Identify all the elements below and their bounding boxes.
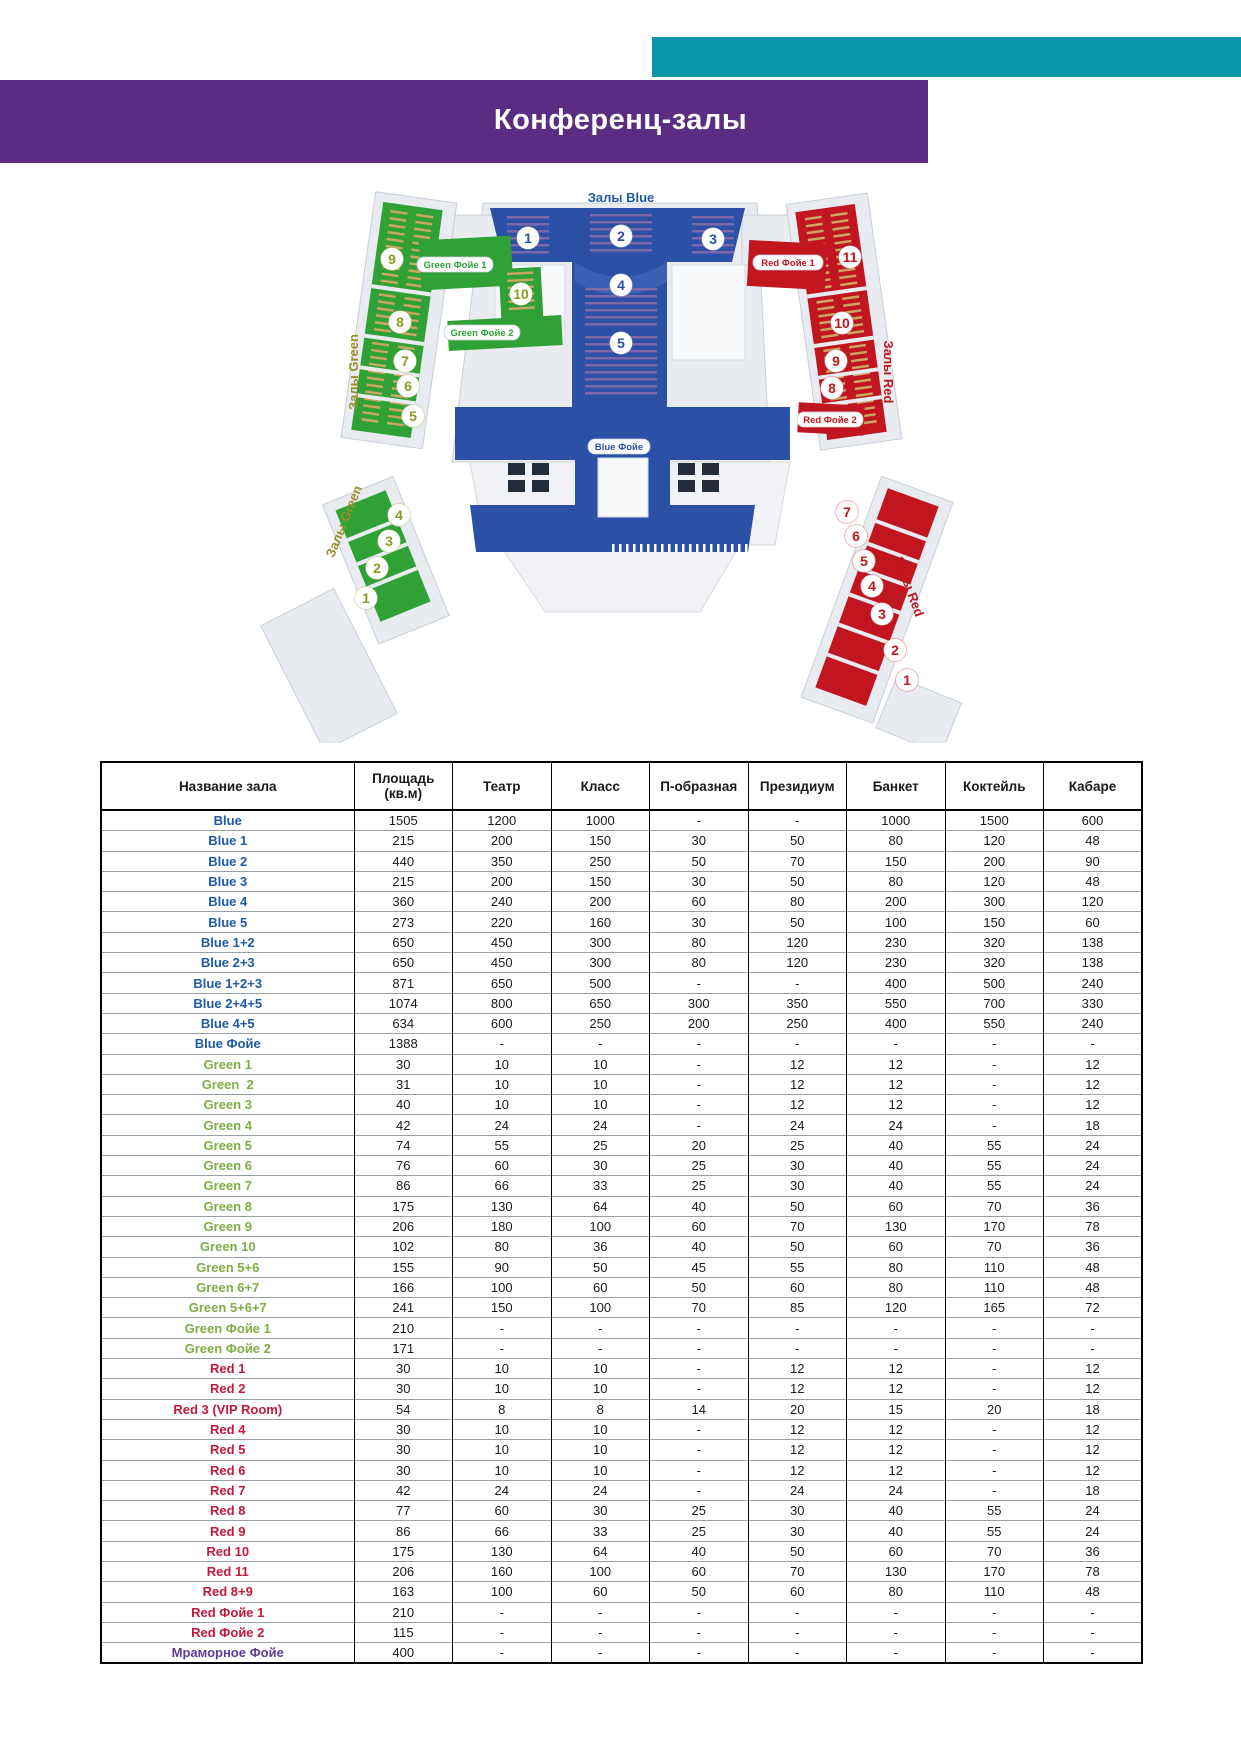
capacity-cell: 100 [453,1582,552,1602]
capacity-cell: - [945,1622,1044,1642]
capacity-cell: 80 [847,871,946,891]
capacity-cell: 12 [847,1074,946,1094]
capacity-cell: 120 [748,932,847,952]
hall-name: Red 6 [101,1460,354,1480]
capacity-cell: 30 [354,1440,453,1460]
capacity-cell: - [945,1379,1044,1399]
capacity-cell: - [1044,1034,1143,1054]
capacity-cell: - [453,1643,552,1664]
capacity-cell: 12 [748,1440,847,1460]
capacity-cell: 200 [945,851,1044,871]
capacity-cell: 1200 [453,810,552,831]
hall-marker-blue-1: 1 [517,227,540,250]
capacity-cell: 90 [453,1257,552,1277]
capacity-cell: 12 [1044,1074,1143,1094]
capacity-cell: 100 [847,912,946,932]
capacity-cell: 60 [847,1196,946,1216]
capacity-cell: - [945,1034,1044,1054]
hall-name: Green 10 [101,1237,354,1257]
capacity-cell: 215 [354,831,453,851]
capacity-cell: 440 [354,851,453,871]
capacity-cell: 78 [1044,1561,1143,1581]
capacity-cell: 24 [453,1480,552,1500]
column-header-banquet: Банкет [847,762,946,810]
table-row: Red 6301010-1212-12 [101,1460,1142,1480]
capacity-cell: 500 [945,973,1044,993]
capacity-cell: 86 [354,1176,453,1196]
capacity-cell: 55 [945,1176,1044,1196]
capacity-cell: 70 [945,1541,1044,1561]
capacity-cell: - [453,1602,552,1622]
capacity-cell: 550 [945,1013,1044,1033]
hall-name: Blue 2 [101,851,354,871]
hall-marker-green-8: 8 [389,311,412,334]
table-row: Red 8+91631006050608011048 [101,1582,1142,1602]
hall-name: Blue 2+4+5 [101,993,354,1013]
hall-marker-blue-4: 4 [610,274,633,297]
hall-marker-red-11: 11 [839,246,862,269]
capacity-cell: 210 [354,1602,453,1622]
capacity-cell: 30 [551,1156,650,1176]
table-row: Blue 43602402006080200300120 [101,892,1142,912]
column-header-cabaret: Кабаре [1044,762,1143,810]
capacity-cell: 80 [847,1277,946,1297]
hall-marker-blue-5: 5 [610,332,633,355]
capacity-cell: - [650,1074,749,1094]
capacity-cell: 241 [354,1298,453,1318]
capacity-cell: 40 [650,1237,749,1257]
capacity-cell: 30 [748,1521,847,1541]
capacity-cell: - [945,1115,1044,1135]
capacity-cell: - [945,1338,1044,1358]
svg-text:7: 7 [401,353,409,369]
capacity-cell: 30 [650,871,749,891]
capacity-cell: 400 [847,1013,946,1033]
svg-text:4: 4 [395,507,403,523]
capacity-cell: - [847,1318,946,1338]
hall-name: Red Фойе 1 [101,1602,354,1622]
capacity-cell: - [945,1460,1044,1480]
hall-marker-red-3: 3 [871,603,894,626]
capacity-cell: - [945,1602,1044,1622]
column-header-theatre: Театр [453,762,552,810]
capacity-cell: - [551,1622,650,1642]
column-header-area: Площадь (кв.м) [354,762,453,810]
hall-marker-blue-2: 2 [610,225,633,248]
capacity-cell: 550 [847,993,946,1013]
capacity-cell: - [551,1643,650,1664]
capacity-cell: 30 [650,912,749,932]
capacity-cell: 400 [354,1643,453,1664]
capacity-cell: 320 [945,932,1044,952]
brochure-page: Конференц-залы [0,0,1241,1755]
capacity-cell: 300 [650,993,749,1013]
hall-name: Green 5 [101,1135,354,1155]
svg-text:Green Фойе 1: Green Фойе 1 [423,260,487,271]
svg-text:6: 6 [852,528,860,544]
capacity-cell: - [847,1602,946,1622]
capacity-cell: 48 [1044,831,1143,851]
capacity-cell: 55 [453,1135,552,1155]
capacity-cell: 60 [748,1582,847,1602]
capacity-cell: 60 [650,1561,749,1581]
capacity-cell: 85 [748,1298,847,1318]
svg-text:3: 3 [709,231,717,247]
capacity-cell: 10 [453,1379,552,1399]
capacity-cell: 60 [1044,912,1143,932]
capacity-table: Название зала Площадь (кв.м) Театр Класс… [100,761,1143,1664]
capacity-cell: - [945,1359,1044,1379]
capacity-cell: 150 [847,851,946,871]
capacity-cell: 10 [551,1074,650,1094]
svg-text:4: 4 [617,277,625,293]
capacity-cell: 80 [748,892,847,912]
table-row: Blue150512001000--10001500600 [101,810,1142,831]
capacity-cell: - [945,1095,1044,1115]
capacity-cell: 120 [748,953,847,973]
hall-marker-green-6: 6 [397,375,420,398]
capacity-cell: 110 [945,1582,1044,1602]
capacity-cell: - [945,1318,1044,1338]
capacity-cell: 60 [453,1156,552,1176]
svg-text:1: 1 [362,590,370,606]
table-row: Blue Фойе1388------- [101,1034,1142,1054]
capacity-cell: 10 [453,1074,552,1094]
capacity-cell: 330 [1044,993,1143,1013]
table-row: Green 6+71661006050608011048 [101,1277,1142,1297]
capacity-cell: 40 [650,1196,749,1216]
capacity-cell: 24 [1044,1156,1143,1176]
capacity-cell: - [748,1338,847,1358]
svg-text:3: 3 [878,606,886,622]
table-row: Red Фойе 2115------- [101,1622,1142,1642]
capacity-cell: - [847,1643,946,1664]
capacity-cell: 12 [748,1359,847,1379]
hall-name: Blue 4+5 [101,1013,354,1033]
table-row: Red 4301010-1212-12 [101,1419,1142,1439]
capacity-cell: 60 [650,1216,749,1236]
hall-name: Red 2 [101,1379,354,1399]
table-row: Green 8175130644050607036 [101,1196,1142,1216]
capacity-cell: 240 [1044,1013,1143,1033]
table-row: Blue 5273220160305010015060 [101,912,1142,932]
capacity-cell: 50 [748,831,847,851]
capacity-cell: 50 [748,1237,847,1257]
capacity-cell: - [650,1602,749,1622]
capacity-cell: 18 [1044,1115,1143,1135]
capacity-cell: 250 [551,1013,650,1033]
capacity-cell: 1074 [354,993,453,1013]
capacity-cell: 50 [650,851,749,871]
capacity-cell: - [650,1034,749,1054]
hall-name: Green 9 [101,1216,354,1236]
capacity-cell: 12 [748,1419,847,1439]
red-foyer1-pill: Red Фойе 1 [753,255,823,270]
capacity-cell: 40 [847,1135,946,1155]
capacity-cell: 150 [551,871,650,891]
capacity-cell: - [453,1034,552,1054]
capacity-cell: 250 [551,851,650,871]
capacity-cell: - [453,1338,552,1358]
table-row: Red 3 (VIP Room)54881420152018 [101,1399,1142,1419]
hall-name: Blue 1+2+3 [101,973,354,993]
hall-name: Green 6 [101,1156,354,1176]
capacity-cell: 300 [551,932,650,952]
table-row: Green 78666332530405524 [101,1176,1142,1196]
capacity-cell: 163 [354,1582,453,1602]
svg-text:1: 1 [524,230,532,246]
green-zone-label-upper: Залы Green [346,334,361,410]
capacity-cell: 60 [551,1582,650,1602]
hall-marker-green-7: 7 [394,350,417,373]
capacity-cell: 12 [1044,1095,1143,1115]
capacity-cell: 80 [847,1257,946,1277]
svg-text:Green Фойе 2: Green Фойе 2 [450,328,513,339]
capacity-cell: - [1044,1643,1143,1664]
capacity-cell: - [650,1054,749,1074]
capacity-cell: - [650,1419,749,1439]
capacity-cell: 30 [354,1460,453,1480]
hall-name: Blue Фойе [101,1034,354,1054]
capacity-cell: 33 [551,1521,650,1541]
hall-name: Green Фойе 1 [101,1318,354,1338]
capacity-cell: - [847,1622,946,1642]
hall-marker-green-3: 3 [378,530,401,553]
capacity-cell: 18 [1044,1480,1143,1500]
capacity-cell: - [650,1440,749,1460]
hall-marker-green-9: 9 [381,248,404,271]
hall-name: Red 5 [101,1440,354,1460]
capacity-cell: 350 [748,993,847,1013]
capacity-cell: 170 [945,1216,1044,1236]
capacity-cell: 40 [847,1156,946,1176]
capacity-cell: 48 [1044,1582,1143,1602]
capacity-cell: - [650,1095,749,1115]
capacity-cell: 10 [551,1440,650,1460]
svg-text:7: 7 [843,504,851,520]
capacity-cell: 12 [1044,1440,1143,1460]
capacity-cell: 166 [354,1277,453,1297]
capacity-cell: 10 [551,1054,650,1074]
table-row: Blue 1+265045030080120230320138 [101,932,1142,952]
capacity-cell: 150 [945,912,1044,932]
table-row: Blue 321520015030508012048 [101,871,1142,891]
capacity-cell: 55 [945,1135,1044,1155]
capacity-cell: 12 [847,1419,946,1439]
capacity-cell: 45 [650,1257,749,1277]
capacity-cell: 150 [551,831,650,851]
capacity-cell: - [748,1602,847,1622]
column-header-ushape: П-образная [650,762,749,810]
hall-name: Blue 2+3 [101,953,354,973]
capacity-cell: 230 [847,953,946,973]
hall-marker-red-9: 9 [825,350,848,373]
capacity-cell: 70 [748,1561,847,1581]
table-row: Green 1301010-1212-12 [101,1054,1142,1074]
capacity-cell: 30 [354,1379,453,1399]
capacity-cell: - [945,1074,1044,1094]
capacity-cell: 60 [551,1277,650,1297]
capacity-cell: 130 [847,1216,946,1236]
hall-name: Red 9 [101,1521,354,1541]
hall-name: Green 8 [101,1196,354,1216]
capacity-cell: 1505 [354,810,453,831]
capacity-cell: 60 [847,1237,946,1257]
capacity-cell: 30 [650,831,749,851]
svg-text:9: 9 [388,251,396,267]
capacity-cell: 10 [551,1359,650,1379]
capacity-cell: 180 [453,1216,552,1236]
hall-marker-red-7: 7 [836,501,859,524]
capacity-cell: 55 [945,1156,1044,1176]
capacity-cell: 120 [945,871,1044,891]
capacity-cell: 400 [847,973,946,993]
capacity-cell: 12 [847,1460,946,1480]
capacity-cell: 12 [847,1359,946,1379]
hall-marker-red-6: 6 [845,525,868,548]
capacity-cell: 240 [1044,973,1143,993]
capacity-cell: - [650,1460,749,1480]
capacity-cell: 80 [650,932,749,952]
hall-name: Blue 3 [101,871,354,891]
hall-marker-green-2: 2 [366,557,389,580]
svg-text:11: 11 [843,249,858,265]
capacity-cell: 120 [945,831,1044,851]
capacity-cell: 42 [354,1480,453,1500]
capacity-cell: 74 [354,1135,453,1155]
capacity-cell: 650 [354,953,453,973]
capacity-cell: 10 [551,1379,650,1399]
capacity-cell: 320 [945,953,1044,973]
table-row: Green 5+6+7241150100708512016572 [101,1298,1142,1318]
hall-marker-green-4: 4 [388,504,411,527]
column-header-cocktail: Коктейль [945,762,1044,810]
capacity-cell: 72 [1044,1298,1143,1318]
capacity-cell: 24 [453,1115,552,1135]
capacity-cell: 160 [453,1561,552,1581]
capacity-cell: - [1044,1602,1143,1622]
capacity-cell: 70 [945,1237,1044,1257]
capacity-cell: 36 [551,1237,650,1257]
table-row: Blue 1+2+3871650500--400500240 [101,973,1142,993]
capacity-cell: 54 [354,1399,453,1419]
capacity-cell: 33 [551,1176,650,1196]
svg-text:Red Фойе 1: Red Фойе 1 [761,258,815,269]
hall-name: Blue 4 [101,892,354,912]
capacity-cell: 12 [847,1379,946,1399]
table-row: Red 11206160100607013017078 [101,1561,1142,1581]
column-header-boardroom: Президиум [748,762,847,810]
capacity-cell: 175 [354,1196,453,1216]
capacity-cell: 200 [847,892,946,912]
hall-marker-green-10: 10 [510,283,533,306]
capacity-cell: 450 [453,932,552,952]
capacity-cell: 10 [453,1419,552,1439]
capacity-cell: 100 [453,1277,552,1297]
capacity-cell: - [1044,1338,1143,1358]
capacity-cell: 871 [354,973,453,993]
svg-text:8: 8 [396,314,404,330]
capacity-cell: - [847,1338,946,1358]
capacity-cell: 273 [354,912,453,932]
capacity-cell: - [650,810,749,831]
capacity-cell: 40 [650,1541,749,1561]
capacity-cell: 14 [650,1399,749,1419]
svg-text:5: 5 [409,408,417,424]
table-row: Green 3401010-1212-12 [101,1095,1142,1115]
capacity-cell: 24 [1044,1176,1143,1196]
capacity-cell: 42 [354,1115,453,1135]
table-row: Red 87760302530405524 [101,1501,1142,1521]
capacity-cell: 55 [945,1521,1044,1541]
hall-name: Green 7 [101,1176,354,1196]
capacity-cell: 64 [551,1196,650,1216]
svg-text:Red Фойе 2: Red Фойе 2 [803,415,857,426]
capacity-cell: 220 [453,912,552,932]
capacity-cell: 10 [551,1419,650,1439]
table-row: Red 5301010-1212-12 [101,1440,1142,1460]
hall-marker-blue-3: 3 [702,228,725,251]
hall-name: Red 3 (VIP Room) [101,1399,354,1419]
capacity-cell: 138 [1044,953,1143,973]
svg-text:2: 2 [891,642,899,658]
capacity-cell: 171 [354,1338,453,1358]
capacity-cell: 200 [650,1013,749,1033]
table-row: Blue 121520015030508012048 [101,831,1142,851]
capacity-cell: 800 [453,993,552,1013]
table-row: Blue 2+4+51074800650300350550700330 [101,993,1142,1013]
table-row: Green 57455252025405524 [101,1135,1142,1155]
capacity-cell: 12 [1044,1379,1143,1399]
capacity-cell: 8 [551,1399,650,1419]
capacity-cell: 30 [551,1501,650,1521]
capacity-cell: 55 [748,1257,847,1277]
capacity-cell: - [453,1622,552,1642]
capacity-cell: 25 [650,1176,749,1196]
capacity-cell: - [748,1622,847,1642]
svg-text:9: 9 [832,353,840,369]
capacity-cell: 80 [847,1582,946,1602]
capacity-cell: - [847,1034,946,1054]
capacity-cell: 66 [453,1176,552,1196]
capacity-cell: 10 [453,1359,552,1379]
capacity-cell: 1000 [847,810,946,831]
green-foyer2-pill: Green Фойе 2 [444,325,520,340]
capacity-cell: 30 [354,1359,453,1379]
svg-text:5: 5 [617,335,625,351]
svg-text:3: 3 [385,533,393,549]
capacity-cell: 30 [354,1054,453,1074]
capacity-cell: 76 [354,1156,453,1176]
capacity-cell: 10 [551,1460,650,1480]
capacity-cell: 18 [1044,1399,1143,1419]
capacity-cell: - [945,1054,1044,1074]
capacity-cell: - [650,1359,749,1379]
capacity-cell: 78 [1044,1216,1143,1236]
capacity-cell: 175 [354,1541,453,1561]
hall-name: Green 2 [101,1074,354,1094]
capacity-cell: 48 [1044,1257,1143,1277]
hall-name: Green 4 [101,1115,354,1135]
table-row: Green 67660302530405524 [101,1156,1142,1176]
capacity-cell: 12 [748,1054,847,1074]
capacity-cell: 600 [1044,810,1143,831]
capacity-cell: - [650,1379,749,1399]
floor-plan-svg: Залы Blue Залы Green Залы Green Залы Red… [250,168,965,743]
hall-marker-red-8: 8 [821,377,844,400]
green-foyer1-pill: Green Фойе 1 [417,257,493,272]
blue-foyer-pill: Blue Фойе [588,439,650,454]
